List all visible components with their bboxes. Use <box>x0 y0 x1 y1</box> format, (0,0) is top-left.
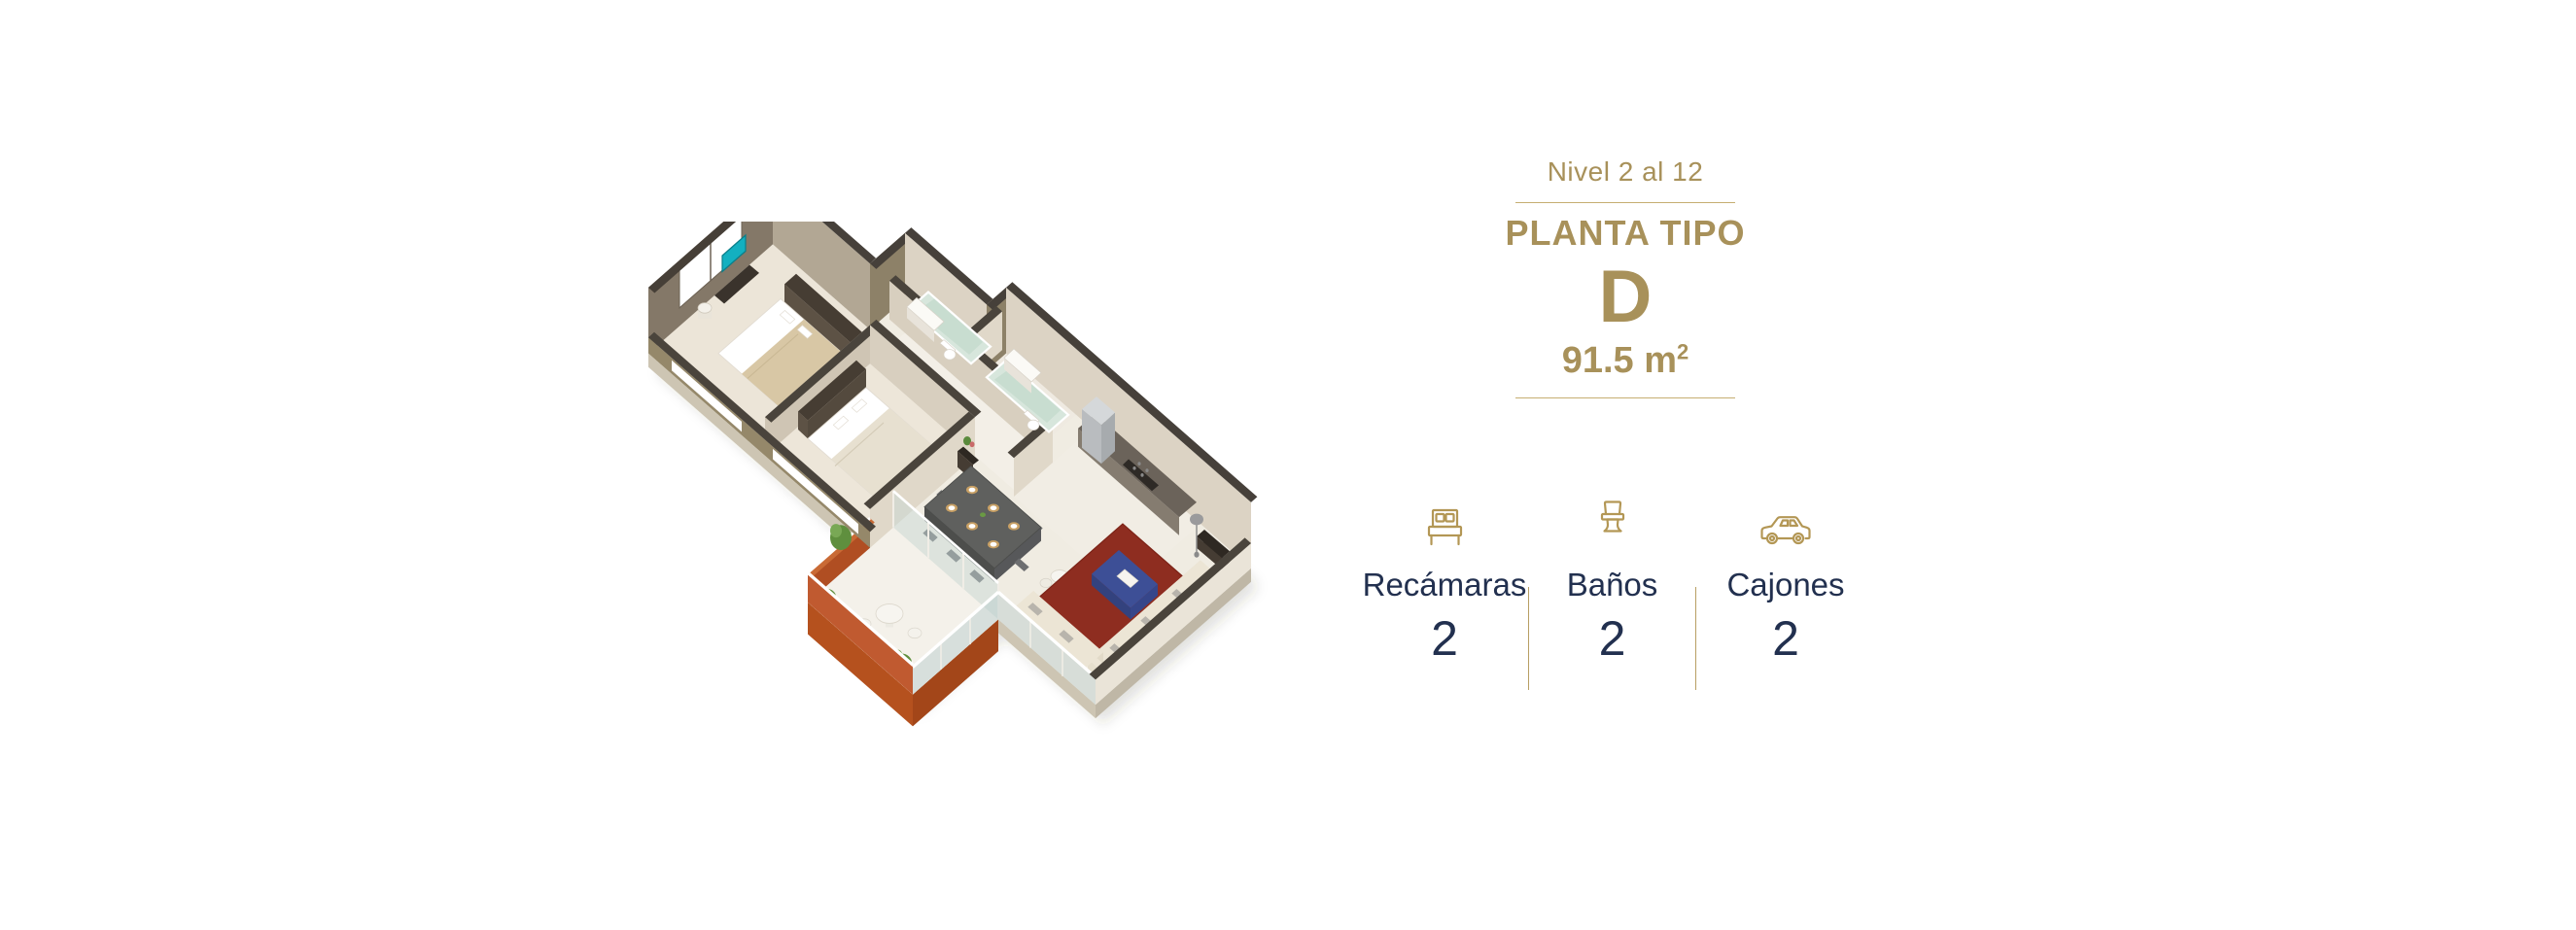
stat-bathrooms: Baños 2 <box>1529 503 1695 666</box>
divider-top <box>1515 202 1735 203</box>
stat-value: 2 <box>1431 612 1458 666</box>
page: Nivel 2 al 12 PLANTA TIPO D 91.5 m2 Recá… <box>0 0 2576 930</box>
plan-info-panel: Nivel 2 al 12 PLANTA TIPO D 91.5 m2 <box>1406 155 1845 408</box>
plan-type-label: PLANTA TIPO <box>1406 213 1845 253</box>
stat-value: 2 <box>1599 612 1626 666</box>
stat-value: 2 <box>1772 612 1799 666</box>
level-label: Nivel 2 al 12 <box>1406 155 1845 189</box>
car-icon <box>1758 503 1814 552</box>
divider-bottom <box>1515 397 1735 398</box>
stat-parking: Cajones 2 <box>1696 503 1875 666</box>
floor-plan-svg <box>627 222 1269 858</box>
plan-area-sup: 2 <box>1677 339 1688 363</box>
toilet-icon <box>1589 503 1636 552</box>
plan-area-value: 91.5 m <box>1562 340 1677 381</box>
stat-bedrooms: Recámaras 2 <box>1361 503 1528 666</box>
plan-letter: D <box>1406 258 1845 336</box>
stat-label: Recámaras <box>1363 568 1527 603</box>
stat-label: Cajones <box>1726 568 1844 603</box>
floor-plan-illustration <box>627 222 1269 858</box>
bed-icon <box>1419 503 1470 552</box>
plan-stats: Recámaras 2 Baños 2 <box>1361 503 1905 690</box>
plan-area: 91.5 m2 <box>1406 340 1845 382</box>
stat-label: Baños <box>1567 568 1658 603</box>
